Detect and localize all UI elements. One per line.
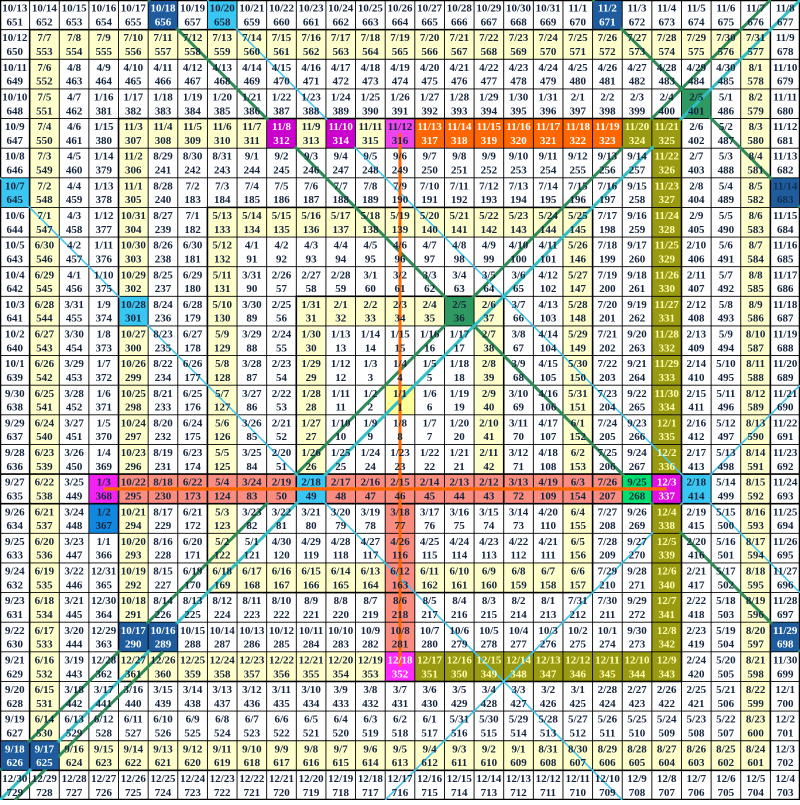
svg-text:5/13: 5/13 xyxy=(716,447,736,459)
svg-text:3/28: 3/28 xyxy=(64,388,84,400)
svg-text:342: 342 xyxy=(658,639,675,651)
svg-text:5/27: 5/27 xyxy=(568,714,588,726)
svg-text:177: 177 xyxy=(184,372,201,384)
svg-text:327: 327 xyxy=(658,194,675,206)
svg-text:523: 523 xyxy=(244,728,261,740)
svg-text:330: 330 xyxy=(658,283,675,295)
svg-text:6/19: 6/19 xyxy=(183,566,203,578)
svg-text:496: 496 xyxy=(718,402,735,414)
svg-text:108: 108 xyxy=(540,461,557,473)
svg-text:1/22: 1/22 xyxy=(420,447,440,459)
svg-text:302: 302 xyxy=(125,283,142,295)
svg-text:1/12: 1/12 xyxy=(331,358,351,370)
svg-text:673: 673 xyxy=(658,16,675,28)
svg-text:7/6: 7/6 xyxy=(304,180,319,192)
svg-text:372: 372 xyxy=(95,372,112,384)
svg-text:2/4: 2/4 xyxy=(660,92,675,104)
svg-text:7/24: 7/24 xyxy=(538,32,558,44)
svg-text:661: 661 xyxy=(303,16,320,28)
svg-text:10/14: 10/14 xyxy=(210,625,236,637)
svg-text:2/10: 2/10 xyxy=(687,240,707,252)
svg-text:171: 171 xyxy=(184,550,201,562)
svg-text:7/14: 7/14 xyxy=(242,32,262,44)
svg-text:560: 560 xyxy=(244,46,261,58)
svg-text:345: 345 xyxy=(599,668,616,680)
svg-text:10: 10 xyxy=(335,431,347,443)
svg-text:6/6: 6/6 xyxy=(274,714,289,726)
svg-text:77: 77 xyxy=(395,520,407,532)
svg-text:8/22: 8/22 xyxy=(746,684,766,696)
svg-text:8/29: 8/29 xyxy=(598,743,618,755)
svg-text:536: 536 xyxy=(36,550,53,562)
svg-text:4/14: 4/14 xyxy=(242,62,262,74)
svg-text:212: 212 xyxy=(570,609,587,621)
svg-text:5/15: 5/15 xyxy=(716,506,736,518)
svg-text:294: 294 xyxy=(125,520,142,532)
svg-text:1/19: 1/19 xyxy=(450,388,470,400)
svg-text:348: 348 xyxy=(510,668,527,680)
svg-text:11/12: 11/12 xyxy=(388,121,413,133)
svg-text:382: 382 xyxy=(125,105,142,117)
svg-text:10/30: 10/30 xyxy=(506,3,532,15)
svg-text:669: 669 xyxy=(540,16,557,28)
svg-text:138: 138 xyxy=(362,224,379,236)
svg-text:8/13: 8/13 xyxy=(183,595,203,607)
svg-text:89: 89 xyxy=(246,313,258,325)
svg-text:11/11: 11/11 xyxy=(773,92,797,104)
svg-text:2/28: 2/28 xyxy=(331,269,351,281)
svg-text:202: 202 xyxy=(599,342,616,354)
svg-text:56: 56 xyxy=(276,313,288,325)
svg-text:258: 258 xyxy=(629,194,646,206)
svg-text:4/23: 4/23 xyxy=(479,536,499,548)
svg-text:4/11: 4/11 xyxy=(539,240,558,252)
svg-text:239: 239 xyxy=(155,224,172,236)
svg-text:9/29: 9/29 xyxy=(627,595,647,607)
svg-text:168: 168 xyxy=(244,579,261,591)
svg-text:12/17: 12/17 xyxy=(417,655,443,667)
svg-text:133: 133 xyxy=(214,224,231,236)
svg-text:9/8: 9/8 xyxy=(452,151,467,163)
svg-text:8/15: 8/15 xyxy=(746,477,766,489)
svg-text:405: 405 xyxy=(688,224,705,236)
svg-text:12/1: 12/1 xyxy=(775,684,795,696)
svg-text:359: 359 xyxy=(184,668,201,680)
svg-text:658: 658 xyxy=(214,16,231,28)
svg-text:7/19: 7/19 xyxy=(390,32,410,44)
svg-text:3/8: 3/8 xyxy=(511,329,526,341)
svg-text:491: 491 xyxy=(718,253,735,265)
svg-text:442: 442 xyxy=(66,698,83,710)
svg-text:461: 461 xyxy=(66,135,83,147)
svg-text:2/9: 2/9 xyxy=(482,388,497,400)
svg-text:11/30: 11/30 xyxy=(773,655,798,667)
svg-text:672: 672 xyxy=(629,16,646,28)
svg-text:584: 584 xyxy=(747,253,764,265)
svg-text:10/6: 10/6 xyxy=(450,625,470,637)
svg-text:3/31: 3/31 xyxy=(242,269,262,281)
svg-text:2/6: 2/6 xyxy=(689,121,704,133)
svg-text:92: 92 xyxy=(276,253,288,265)
svg-text:450: 450 xyxy=(66,461,83,473)
svg-text:7/29: 7/29 xyxy=(687,32,707,44)
svg-text:7/31: 7/31 xyxy=(568,595,588,607)
svg-text:11/5: 11/5 xyxy=(687,3,706,15)
svg-text:530: 530 xyxy=(36,728,53,740)
svg-text:565: 565 xyxy=(392,46,409,58)
svg-text:3/29: 3/29 xyxy=(64,358,84,370)
svg-text:10/15: 10/15 xyxy=(180,625,206,637)
svg-text:580: 580 xyxy=(747,135,764,147)
svg-text:524: 524 xyxy=(214,728,231,740)
svg-text:90: 90 xyxy=(246,283,258,295)
svg-text:12/22: 12/22 xyxy=(269,655,295,667)
svg-text:729: 729 xyxy=(7,787,24,799)
svg-text:702: 702 xyxy=(777,757,794,769)
svg-text:2/16: 2/16 xyxy=(687,417,707,429)
svg-text:1/4: 1/4 xyxy=(393,358,408,370)
svg-text:578: 578 xyxy=(747,76,764,88)
svg-text:184: 184 xyxy=(214,194,231,206)
svg-text:3/1: 3/1 xyxy=(363,269,377,281)
svg-text:178: 178 xyxy=(184,342,201,354)
svg-text:300: 300 xyxy=(125,342,142,354)
svg-text:582: 582 xyxy=(747,194,764,206)
svg-text:8/12: 8/12 xyxy=(212,595,232,607)
svg-text:17: 17 xyxy=(454,342,466,354)
svg-text:6/21: 6/21 xyxy=(35,506,55,518)
svg-text:683: 683 xyxy=(777,194,794,206)
svg-text:296: 296 xyxy=(125,461,142,473)
svg-text:599: 599 xyxy=(747,698,764,710)
svg-text:7/28: 7/28 xyxy=(657,32,677,44)
svg-text:3/25: 3/25 xyxy=(64,477,84,489)
svg-text:12/7: 12/7 xyxy=(657,595,677,607)
svg-text:508: 508 xyxy=(688,728,705,740)
svg-text:380: 380 xyxy=(95,135,112,147)
svg-text:238: 238 xyxy=(155,253,172,265)
svg-text:4/24: 4/24 xyxy=(538,62,558,74)
svg-text:2/12: 2/12 xyxy=(687,299,707,311)
svg-text:11/16: 11/16 xyxy=(773,240,798,252)
svg-text:689: 689 xyxy=(777,372,794,384)
svg-text:10/2: 10/2 xyxy=(568,625,588,637)
svg-text:1/5: 1/5 xyxy=(423,358,438,370)
svg-text:6/15: 6/15 xyxy=(35,684,55,696)
svg-text:172: 172 xyxy=(184,520,201,532)
svg-text:158: 158 xyxy=(540,579,557,591)
svg-text:8/24: 8/24 xyxy=(153,299,173,311)
svg-text:8/17: 8/17 xyxy=(153,506,173,518)
svg-text:443: 443 xyxy=(66,668,83,680)
svg-text:710: 710 xyxy=(570,787,587,799)
svg-text:8/2: 8/2 xyxy=(511,595,526,607)
svg-text:383: 383 xyxy=(155,105,172,117)
svg-text:4/4: 4/4 xyxy=(334,240,349,252)
svg-text:8/23: 8/23 xyxy=(153,329,173,341)
svg-text:8/16: 8/16 xyxy=(746,506,766,518)
svg-text:7: 7 xyxy=(427,431,433,443)
svg-text:547: 547 xyxy=(36,224,53,236)
svg-text:343: 343 xyxy=(658,668,675,680)
svg-text:2/7: 2/7 xyxy=(482,329,497,341)
svg-text:6/16: 6/16 xyxy=(35,655,55,667)
svg-text:7/29: 7/29 xyxy=(598,566,618,578)
svg-text:416: 416 xyxy=(688,550,705,562)
svg-text:7/12: 7/12 xyxy=(479,180,499,192)
svg-text:12/2: 12/2 xyxy=(775,714,795,726)
svg-text:102: 102 xyxy=(540,283,557,295)
svg-text:11/10: 11/10 xyxy=(328,121,353,133)
svg-text:706: 706 xyxy=(688,787,705,799)
svg-text:591: 591 xyxy=(747,461,764,473)
svg-text:8/19: 8/19 xyxy=(153,447,173,459)
svg-text:9/10: 9/10 xyxy=(242,743,262,755)
svg-text:5/31: 5/31 xyxy=(568,388,588,400)
svg-text:301: 301 xyxy=(125,313,142,325)
svg-text:5/12: 5/12 xyxy=(212,240,232,252)
svg-text:12/4: 12/4 xyxy=(775,773,795,785)
svg-text:346: 346 xyxy=(570,668,587,680)
svg-text:188: 188 xyxy=(332,194,349,206)
svg-text:229: 229 xyxy=(155,520,172,532)
svg-text:83: 83 xyxy=(246,491,258,503)
svg-text:33: 33 xyxy=(365,313,377,325)
svg-text:10/30: 10/30 xyxy=(121,240,147,252)
svg-text:4/8: 4/8 xyxy=(452,240,467,252)
svg-text:439: 439 xyxy=(155,698,172,710)
svg-text:7/1: 7/1 xyxy=(37,210,51,222)
svg-text:12/11: 12/11 xyxy=(566,773,590,785)
svg-text:544: 544 xyxy=(36,313,53,325)
svg-text:643: 643 xyxy=(7,253,24,265)
svg-text:51: 51 xyxy=(276,461,287,473)
svg-text:7/20: 7/20 xyxy=(420,32,440,44)
svg-text:3/23: 3/23 xyxy=(242,506,262,518)
svg-text:5/4: 5/4 xyxy=(719,180,734,192)
svg-text:10/28: 10/28 xyxy=(121,299,147,311)
svg-text:656: 656 xyxy=(155,16,172,28)
svg-text:12/20: 12/20 xyxy=(328,655,354,667)
svg-text:621: 621 xyxy=(155,757,172,769)
svg-text:167: 167 xyxy=(273,579,290,591)
svg-text:659: 659 xyxy=(244,16,261,28)
svg-text:2/17: 2/17 xyxy=(331,477,351,489)
svg-text:295: 295 xyxy=(125,491,142,503)
svg-text:10/9: 10/9 xyxy=(5,121,25,133)
svg-text:245: 245 xyxy=(273,165,290,177)
svg-text:12/12: 12/12 xyxy=(536,773,562,785)
svg-text:1/2: 1/2 xyxy=(97,506,112,518)
svg-text:355: 355 xyxy=(303,668,320,680)
svg-text:7/18: 7/18 xyxy=(361,32,381,44)
svg-text:1/20: 1/20 xyxy=(450,417,470,429)
svg-text:11/21: 11/21 xyxy=(773,388,797,400)
svg-text:6/6: 6/6 xyxy=(571,566,586,578)
svg-text:161: 161 xyxy=(451,579,468,591)
svg-text:12/18: 12/18 xyxy=(358,773,384,785)
svg-text:12/27: 12/27 xyxy=(121,655,147,667)
svg-text:8/31: 8/31 xyxy=(538,743,558,755)
svg-text:319: 319 xyxy=(481,135,498,147)
svg-text:543: 543 xyxy=(36,342,53,354)
svg-text:41: 41 xyxy=(483,431,494,443)
svg-text:6/21: 6/21 xyxy=(183,506,203,518)
svg-text:5/13: 5/13 xyxy=(212,210,232,222)
svg-text:253: 253 xyxy=(510,165,527,177)
svg-text:308: 308 xyxy=(155,135,172,147)
svg-text:87: 87 xyxy=(246,372,258,384)
svg-text:5/3: 5/3 xyxy=(215,506,230,518)
svg-text:397: 397 xyxy=(570,105,587,117)
svg-text:200: 200 xyxy=(599,283,616,295)
svg-text:3/5: 3/5 xyxy=(452,684,467,696)
svg-text:470: 470 xyxy=(273,76,290,88)
svg-text:3/7: 3/7 xyxy=(511,299,526,311)
svg-text:9/18: 9/18 xyxy=(5,743,25,755)
svg-text:558: 558 xyxy=(184,46,201,58)
svg-text:5/14: 5/14 xyxy=(242,210,262,222)
svg-text:211: 211 xyxy=(599,609,615,621)
svg-text:1/19: 1/19 xyxy=(183,92,203,104)
svg-text:115: 115 xyxy=(422,550,438,562)
svg-text:527: 527 xyxy=(125,728,142,740)
svg-text:671: 671 xyxy=(599,16,616,28)
svg-text:9/18: 9/18 xyxy=(627,269,647,281)
svg-text:4/20: 4/20 xyxy=(538,506,558,518)
svg-text:6/1: 6/1 xyxy=(423,714,437,726)
svg-text:282: 282 xyxy=(362,639,379,651)
svg-text:12/31: 12/31 xyxy=(91,566,116,578)
svg-text:2/25: 2/25 xyxy=(687,684,707,696)
svg-text:379: 379 xyxy=(95,165,112,177)
svg-text:11/27: 11/27 xyxy=(773,566,798,578)
svg-text:388: 388 xyxy=(303,105,320,117)
svg-text:594: 594 xyxy=(747,550,764,562)
svg-text:459: 459 xyxy=(66,194,83,206)
svg-text:27: 27 xyxy=(306,431,318,443)
svg-text:4/7: 4/7 xyxy=(67,92,82,104)
svg-text:107: 107 xyxy=(540,431,557,443)
svg-text:5/16: 5/16 xyxy=(301,210,321,222)
svg-text:709: 709 xyxy=(599,787,616,799)
svg-text:2/22: 2/22 xyxy=(272,388,292,400)
svg-text:220: 220 xyxy=(332,609,349,621)
svg-text:19: 19 xyxy=(454,402,466,414)
svg-text:1/29: 1/29 xyxy=(479,92,499,104)
svg-text:3/27: 3/27 xyxy=(64,417,84,429)
svg-text:6/2: 6/2 xyxy=(571,447,586,459)
svg-text:3/5: 3/5 xyxy=(482,269,497,281)
svg-text:2/20: 2/20 xyxy=(687,536,707,548)
svg-text:47: 47 xyxy=(365,491,377,503)
svg-text:529: 529 xyxy=(66,728,83,740)
svg-text:134: 134 xyxy=(244,224,261,236)
svg-text:331: 331 xyxy=(658,313,675,325)
svg-text:483: 483 xyxy=(658,76,675,88)
svg-text:11/11: 11/11 xyxy=(358,121,382,133)
svg-text:693: 693 xyxy=(777,491,794,503)
svg-text:103: 103 xyxy=(540,313,557,325)
svg-text:4/23: 4/23 xyxy=(509,62,529,74)
svg-text:4/22: 4/22 xyxy=(479,62,499,74)
svg-text:444: 444 xyxy=(66,639,83,651)
svg-text:488: 488 xyxy=(718,165,735,177)
svg-text:10/2: 10/2 xyxy=(5,329,25,341)
svg-text:8/3: 8/3 xyxy=(749,121,764,133)
svg-text:718: 718 xyxy=(332,787,349,799)
svg-text:8/17: 8/17 xyxy=(746,536,766,548)
svg-text:473: 473 xyxy=(362,76,379,88)
svg-text:10/18: 10/18 xyxy=(121,595,147,607)
svg-text:394: 394 xyxy=(481,105,498,117)
svg-text:479: 479 xyxy=(540,76,557,88)
svg-text:3/11: 3/11 xyxy=(272,684,291,696)
svg-text:247: 247 xyxy=(332,165,349,177)
svg-text:310: 310 xyxy=(214,135,231,147)
svg-text:9/7: 9/7 xyxy=(334,743,349,755)
svg-text:213: 213 xyxy=(540,609,557,621)
svg-text:10/16: 10/16 xyxy=(150,625,176,637)
svg-text:3/6: 3/6 xyxy=(423,684,438,696)
svg-text:10/5: 10/5 xyxy=(5,240,25,252)
svg-text:497: 497 xyxy=(718,431,735,443)
svg-text:73: 73 xyxy=(513,520,525,532)
svg-text:5/7: 5/7 xyxy=(215,388,230,400)
svg-text:9/22: 9/22 xyxy=(627,388,647,400)
svg-text:128: 128 xyxy=(214,372,231,384)
svg-text:98: 98 xyxy=(454,253,466,265)
svg-text:615: 615 xyxy=(332,757,349,769)
svg-text:712: 712 xyxy=(510,787,527,799)
svg-text:191: 191 xyxy=(421,194,438,206)
svg-text:7/7: 7/7 xyxy=(37,32,52,44)
svg-text:477: 477 xyxy=(481,76,498,88)
svg-text:522: 522 xyxy=(273,728,290,740)
svg-text:113: 113 xyxy=(481,550,497,562)
svg-text:687: 687 xyxy=(777,313,794,325)
svg-text:6/10: 6/10 xyxy=(450,566,470,578)
svg-text:9/9: 9/9 xyxy=(274,743,289,755)
svg-text:7/26: 7/26 xyxy=(598,32,618,44)
svg-text:321: 321 xyxy=(540,135,557,147)
svg-text:365: 365 xyxy=(95,579,112,591)
svg-text:649: 649 xyxy=(7,76,24,88)
svg-text:9/5: 9/5 xyxy=(393,743,408,755)
svg-text:52: 52 xyxy=(276,431,288,443)
svg-text:4/30: 4/30 xyxy=(716,62,736,74)
svg-text:2/28: 2/28 xyxy=(598,684,618,696)
svg-text:575: 575 xyxy=(688,46,705,58)
svg-text:130: 130 xyxy=(214,313,231,325)
svg-text:1/26: 1/26 xyxy=(390,92,410,104)
svg-text:507: 507 xyxy=(718,728,735,740)
svg-text:5/9: 5/9 xyxy=(719,329,734,341)
svg-text:11/14: 11/14 xyxy=(447,121,472,133)
svg-text:635: 635 xyxy=(7,491,24,503)
svg-text:318: 318 xyxy=(451,135,468,147)
svg-text:315: 315 xyxy=(362,135,379,147)
svg-text:320: 320 xyxy=(510,135,527,147)
svg-text:10/31: 10/31 xyxy=(536,3,561,15)
svg-text:6/20: 6/20 xyxy=(35,536,55,548)
svg-text:569: 569 xyxy=(510,46,527,58)
svg-text:10/21: 10/21 xyxy=(121,506,146,518)
svg-text:11/28: 11/28 xyxy=(773,595,798,607)
svg-text:268: 268 xyxy=(629,491,646,503)
svg-text:59: 59 xyxy=(335,283,347,295)
svg-text:3/11: 3/11 xyxy=(509,417,528,429)
